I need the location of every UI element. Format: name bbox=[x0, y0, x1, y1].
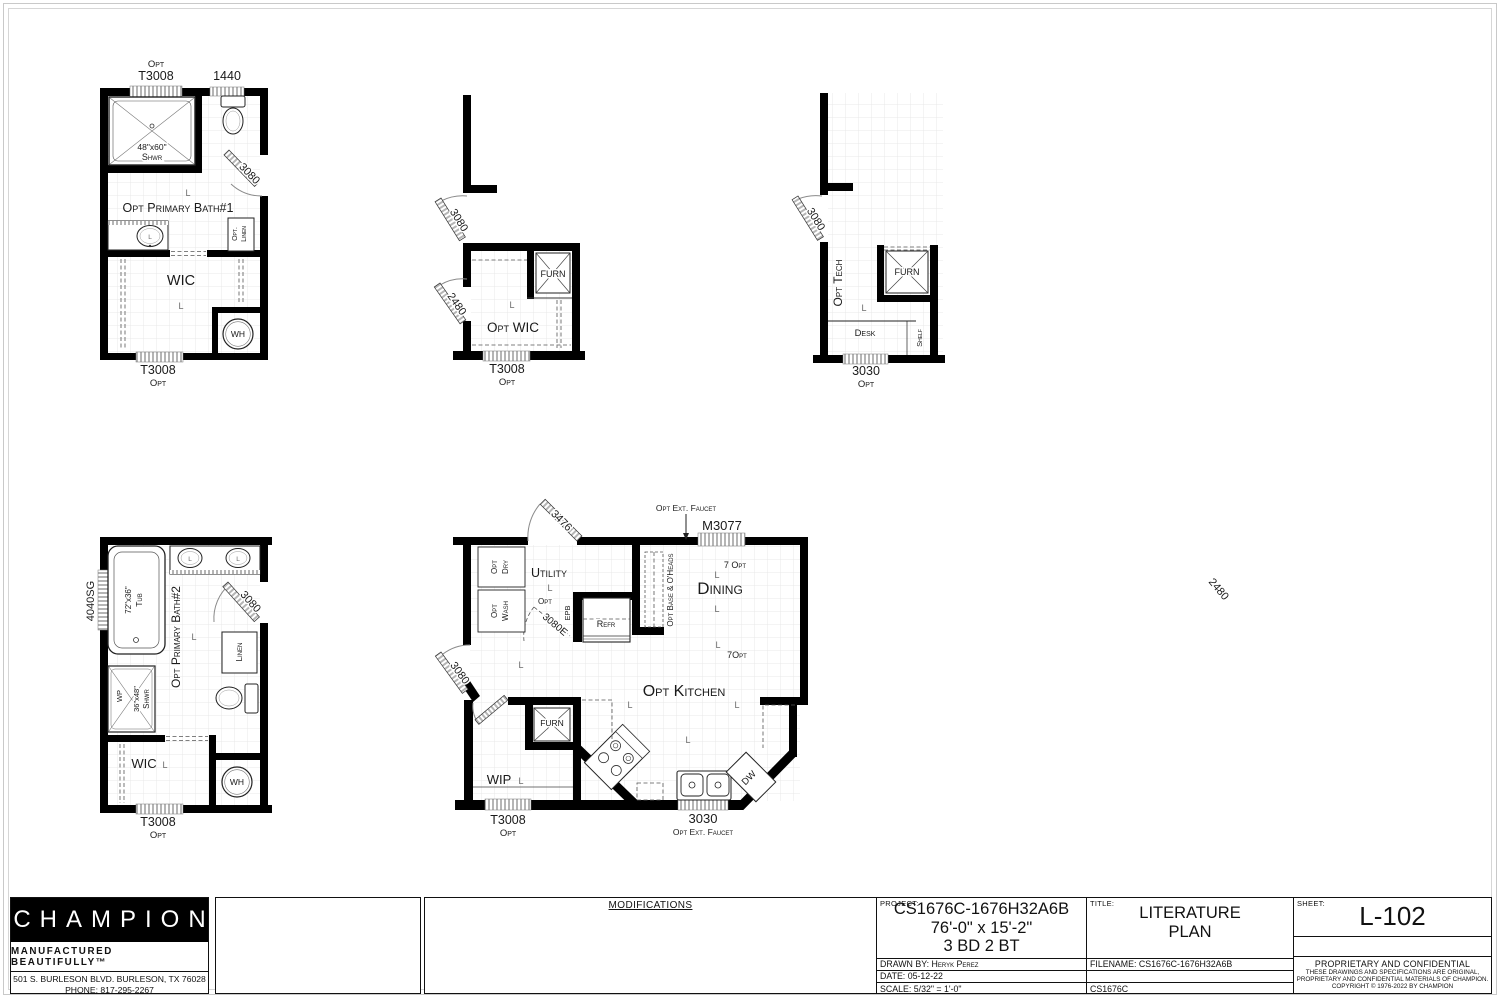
drawing-sheet: Opt T3008 1440 48"x60" Shwr 3080 L Opt P… bbox=[0, 0, 1500, 998]
win-bottom-label: T3008 bbox=[489, 362, 524, 376]
win-bottom-label: 3030 bbox=[689, 811, 718, 826]
utility-title: Utility bbox=[531, 566, 567, 580]
champion-wordmark: CHAMPION bbox=[11, 898, 208, 942]
furn-label: FURN bbox=[541, 269, 566, 279]
confidential-line3: COPYRIGHT © 1976-2022 BY CHAMPION bbox=[1294, 983, 1491, 990]
bath2-floorplan: 4040SG 72"x36" Tub L L Opt Primary Bath#… bbox=[85, 525, 285, 845]
win-1440-label: 1440 bbox=[213, 69, 241, 83]
window-3030 bbox=[678, 799, 728, 810]
sink1-l: L bbox=[188, 556, 192, 563]
wash-label-1: Opt bbox=[490, 604, 499, 618]
champion-logo-block: CHAMPION MANUFACTURED BEAUTIFULLY™ 501 S… bbox=[10, 897, 209, 994]
shower-label: Shwr bbox=[142, 152, 163, 162]
kitchen-l3: L bbox=[685, 735, 690, 745]
door-wip-label: 2480 bbox=[1206, 576, 1231, 602]
door-opt-label: Opt bbox=[538, 597, 552, 606]
base-label: Opt Base & O'Heads bbox=[666, 553, 675, 626]
dining-l3: L bbox=[715, 640, 720, 650]
confidential-title: PROPRIETARY AND CONFIDENTIAL bbox=[1294, 959, 1491, 969]
modifications-heading: MODIFICATIONS bbox=[425, 898, 876, 911]
win-bottom-opt: Opt bbox=[150, 830, 167, 841]
tech-title: Opt Tech bbox=[831, 259, 845, 306]
title-line2: PLAN bbox=[1087, 923, 1293, 942]
win-bottom-label: 3030 bbox=[852, 364, 880, 378]
shower-size-label: 36"x48" bbox=[132, 686, 141, 712]
dining-title: Dining bbox=[697, 579, 743, 598]
modifications-block: MODIFICATIONS bbox=[424, 897, 877, 994]
opt7-top: 7 Opt bbox=[724, 560, 747, 570]
furn-label: FURN bbox=[895, 267, 920, 277]
furn-label: FURN bbox=[540, 718, 564, 728]
filename-row: FILENAME: CS1676C-1676H32A6B bbox=[1087, 959, 1293, 971]
opt7-bottom: 7Opt bbox=[727, 650, 747, 660]
date-row: DATE: 05-12-22 bbox=[877, 971, 1086, 983]
champion-tagline: MANUFACTURED BEAUTIFULLY™ bbox=[11, 942, 208, 972]
title-box: TITLE: LITERATURE PLAN FILENAME: CS1676C… bbox=[1086, 897, 1294, 994]
kitchen-l1: L bbox=[627, 700, 632, 710]
project-size: 76'-0" x 15'-2" bbox=[877, 919, 1086, 938]
win-bottom-opt: Opt bbox=[858, 379, 875, 390]
linen-label-2: Linen bbox=[241, 226, 248, 242]
kitchen-sink bbox=[677, 771, 731, 800]
refr-label: Refr bbox=[597, 619, 616, 629]
l-marker: L bbox=[861, 303, 866, 313]
window-t3008-top bbox=[130, 86, 182, 97]
wic-title: Opt WIC bbox=[487, 320, 539, 335]
confidential-note: PROPRIETARY AND CONFIDENTIAL THESE DRAWI… bbox=[1294, 957, 1491, 991]
win-bottom-opt: Opt bbox=[150, 378, 167, 389]
win-bl-opt: Opt bbox=[500, 828, 517, 839]
window-t3008 bbox=[483, 351, 530, 361]
model-row: CS1676C bbox=[1087, 983, 1293, 995]
bath1-title: Opt Primary Bath#1 bbox=[123, 201, 234, 215]
wash-label-2: Wash bbox=[501, 601, 510, 621]
utility-l: L bbox=[547, 583, 552, 593]
kitchen-title: Opt Kitchen bbox=[643, 683, 726, 700]
tech-floorplan: 3080 Opt Tech FURN L Desk Shelf 3030 Opt bbox=[788, 85, 953, 395]
sink-l: L bbox=[148, 234, 152, 241]
project-main: PROJECT: CS1676C-1676H32A6B 76'-0" x 15'… bbox=[877, 898, 1086, 959]
wp-label: WP bbox=[115, 690, 124, 702]
wh-label: WH bbox=[231, 329, 245, 339]
wip-title: WIP bbox=[487, 772, 512, 787]
dining-l2: L bbox=[714, 604, 719, 614]
project-label: PROJECT: bbox=[880, 899, 919, 908]
linen-label-1: Opt. bbox=[232, 227, 239, 241]
kitchen-floorplan: Opt Ext. Faucet M3077 3476 Opt Dry Opt W… bbox=[438, 498, 813, 843]
wic-label: WIC bbox=[167, 273, 195, 289]
wic-label: WIC bbox=[131, 756, 156, 771]
vanity-sink bbox=[108, 221, 168, 250]
scale-row: SCALE: 5/32" = 1'-0" bbox=[877, 983, 1086, 995]
dry-label-1: Opt bbox=[490, 560, 499, 574]
wh-label: WH bbox=[230, 777, 244, 787]
window-t3008 bbox=[485, 799, 531, 810]
dry-label-2: Dry bbox=[501, 560, 510, 574]
window-1440 bbox=[210, 87, 244, 96]
tub-size-label: 72"x36" bbox=[124, 586, 133, 614]
window-m3077 bbox=[698, 533, 745, 546]
desk-label: Desk bbox=[855, 328, 876, 339]
title-lines: LITERATURE PLAN bbox=[1087, 898, 1293, 941]
shower-label: Shwr bbox=[142, 689, 151, 709]
drawn-by-row: DRAWN BY: Heryk Perez bbox=[877, 959, 1086, 971]
window-t3008 bbox=[136, 804, 183, 814]
title-line1: LITERATURE bbox=[1087, 904, 1293, 923]
wic-l: L bbox=[162, 760, 167, 770]
window-3030 bbox=[843, 354, 888, 364]
shelf-label: Shelf bbox=[915, 329, 924, 347]
confidential-line1: THESE DRAWINGS AND SPECIFICATIONS ARE OR… bbox=[1294, 969, 1491, 976]
faucet-top-label: Opt Ext. Faucet bbox=[656, 503, 717, 513]
tile-grid bbox=[828, 93, 943, 355]
project-beds: 3 BD 2 BT bbox=[877, 937, 1086, 956]
bath1-floorplan: Opt T3008 1440 48"x60" Shwr 3080 L Opt P… bbox=[78, 55, 283, 395]
bath2-title: Opt Primary Bath#2 bbox=[169, 586, 183, 688]
win-bl-label: T3008 bbox=[490, 813, 525, 827]
empty-block bbox=[215, 897, 421, 994]
faucet-bottom-label: Opt Ext. Faucet bbox=[673, 827, 734, 837]
wic-floorplan: 3080 2480 FURN L Opt WIC T3008 Opt bbox=[425, 85, 595, 395]
win-bottom-opt: Opt bbox=[499, 377, 516, 388]
sheet-block: SHEET: L-102 PROPRIETARY AND CONFIDENTIA… bbox=[1293, 897, 1492, 994]
wip-l: L bbox=[518, 776, 523, 786]
l-marker: L bbox=[509, 300, 514, 310]
sheet-main: SHEET: L-102 bbox=[1294, 898, 1491, 937]
l-marker: L bbox=[185, 188, 190, 198]
empty-row bbox=[1087, 971, 1293, 983]
win-top-label: M3077 bbox=[702, 518, 742, 533]
title-label: TITLE: bbox=[1090, 899, 1114, 908]
window-t3008-bottom bbox=[136, 352, 183, 362]
address-line: 501 S. BURLESON BLVD. BURLESON, TX 76028 bbox=[11, 974, 208, 985]
win-top-label: T3008 bbox=[138, 69, 173, 83]
toilet bbox=[221, 96, 245, 134]
double-vanity bbox=[170, 546, 260, 574]
phone-line: PHONE: 817-295-2267 bbox=[11, 985, 208, 996]
l-marker: L bbox=[191, 632, 196, 642]
sheet-label: SHEET: bbox=[1297, 899, 1325, 908]
linen-label: Linen bbox=[235, 643, 244, 662]
utility2-l: L bbox=[518, 660, 523, 670]
project-block: PROJECT: CS1676C-1676H32A6B 76'-0" x 15'… bbox=[876, 897, 1087, 994]
sheet-empty-row bbox=[1294, 937, 1491, 957]
win-bottom-label: T3008 bbox=[140, 815, 175, 829]
tub-label: Tub bbox=[134, 593, 144, 607]
epb-label: EPB bbox=[563, 605, 572, 620]
wic-l: L bbox=[178, 301, 183, 311]
sink2-l: L bbox=[236, 556, 240, 563]
kitchen-l2: L bbox=[734, 700, 739, 710]
champion-address: 501 S. BURLESON BLVD. BURLESON, TX 76028… bbox=[11, 972, 208, 996]
faucet-arrow bbox=[683, 514, 689, 540]
shower-size-label: 48"x60" bbox=[137, 142, 166, 152]
win-bottom-label: T3008 bbox=[140, 363, 175, 377]
title-main: TITLE: LITERATURE PLAN bbox=[1087, 898, 1293, 959]
win-left-label: 4040SG bbox=[85, 581, 97, 621]
